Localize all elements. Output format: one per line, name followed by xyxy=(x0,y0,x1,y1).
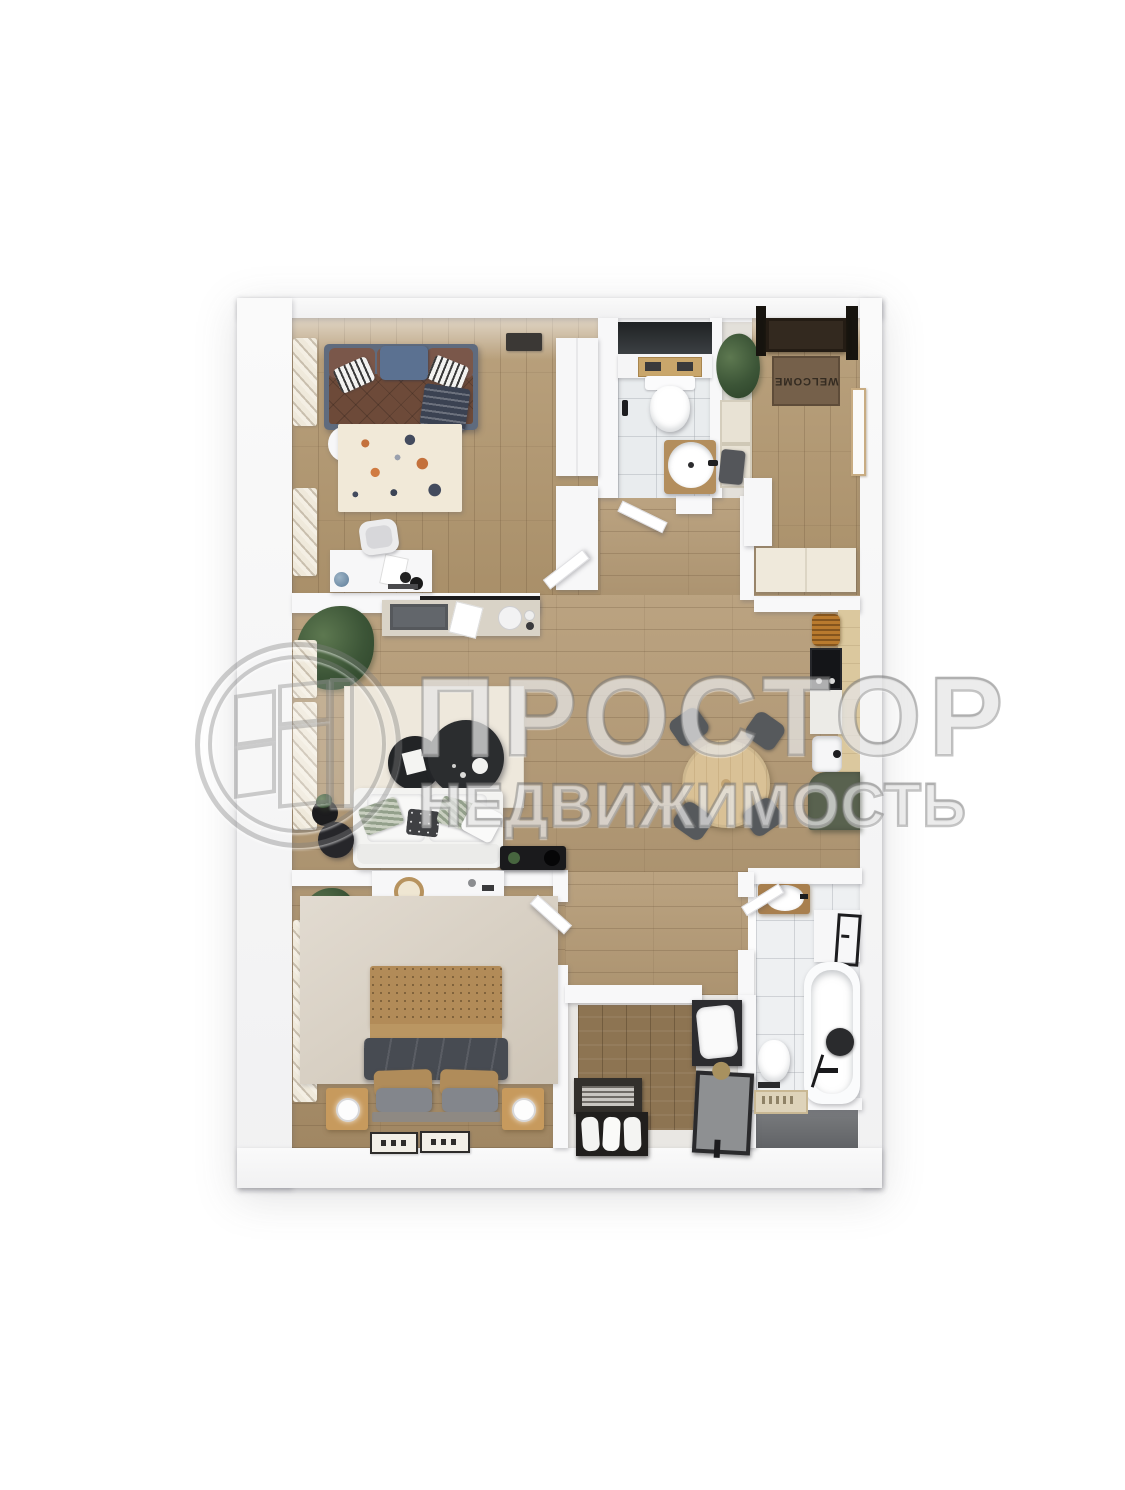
basin-faucet xyxy=(708,460,718,466)
towel-box xyxy=(576,1112,648,1156)
kitchen-counter-mid xyxy=(810,690,842,734)
bread-basket xyxy=(812,614,840,646)
gray-pillow xyxy=(442,1088,498,1112)
rolled-towel xyxy=(602,1117,621,1152)
vanity-faucet xyxy=(800,894,808,899)
cooktop xyxy=(810,648,842,690)
bed-base xyxy=(372,1112,500,1122)
wall-bottom xyxy=(237,1148,882,1188)
kitchen-sink xyxy=(812,736,842,772)
laptop xyxy=(390,604,448,630)
nightstand-left xyxy=(326,1088,368,1130)
cup xyxy=(524,610,535,621)
wall-bedroom1-right xyxy=(598,318,618,498)
kettle xyxy=(498,606,522,630)
towel-hook xyxy=(622,400,628,416)
table-lamp xyxy=(336,1098,360,1122)
welcome-mat-text: WELCOME xyxy=(774,375,838,387)
table-decor xyxy=(460,772,466,778)
toilet-bowl xyxy=(758,1040,790,1082)
rolled-towel xyxy=(623,1117,641,1152)
logo-pane xyxy=(234,741,276,799)
blue-pillow xyxy=(380,346,428,380)
desk-chair xyxy=(358,518,400,557)
wall-storage-top xyxy=(565,985,702,1003)
basin-drain xyxy=(688,462,694,468)
storage-bench xyxy=(756,548,856,592)
logo-pane xyxy=(278,679,330,726)
magazine-rack xyxy=(574,1078,642,1114)
globe xyxy=(334,572,349,587)
console-speaker xyxy=(544,850,560,866)
media-console xyxy=(500,846,566,870)
woven-ball xyxy=(712,1061,731,1080)
round-basin xyxy=(668,442,714,488)
wall-bathroom-top xyxy=(748,868,862,884)
floorplan-render: WELCOME xyxy=(0,0,1125,1490)
console-plant xyxy=(508,852,520,864)
desk-tray xyxy=(388,584,418,589)
shelf-unit xyxy=(692,1000,742,1066)
wall-corridor-bathroom-b xyxy=(738,950,754,998)
patterned-rug xyxy=(338,424,462,512)
logo-pane xyxy=(234,689,276,747)
entrance-door-jamb xyxy=(846,306,858,360)
watermark-logo-glyph xyxy=(228,678,358,808)
curtain xyxy=(293,488,317,576)
table-lamp xyxy=(512,1098,536,1122)
tray-item xyxy=(645,362,661,371)
stored-pillow xyxy=(695,1004,738,1060)
rail-bar xyxy=(841,935,849,939)
entry-white-cabinet xyxy=(744,478,772,546)
wall-corridor-bathroom-a xyxy=(738,872,754,897)
wc-tray xyxy=(638,357,702,377)
table-knot xyxy=(721,779,731,789)
woven-headboard xyxy=(370,966,502,1028)
paper-sheet xyxy=(449,601,484,639)
wall-wc-bottom xyxy=(676,496,712,514)
laundry-basket xyxy=(692,1071,754,1156)
cooktop-knob xyxy=(829,678,835,684)
rolled-towel xyxy=(581,1116,600,1151)
toilet-flush xyxy=(758,1082,780,1088)
bath-mat xyxy=(754,1090,808,1114)
desk xyxy=(330,550,432,592)
wall-top xyxy=(237,298,882,318)
wardrobe xyxy=(556,338,598,476)
nightstand-right xyxy=(502,1088,544,1130)
sink-faucet xyxy=(833,750,841,758)
toilet-bowl xyxy=(650,386,690,432)
coffee-table-large xyxy=(428,720,504,796)
gray-pillow xyxy=(376,1088,432,1112)
bath-fixture xyxy=(818,1068,838,1073)
towel-rail xyxy=(834,913,862,967)
welcome-mat: WELCOME xyxy=(772,356,840,406)
console-table xyxy=(382,600,540,636)
mat-pattern xyxy=(762,1096,796,1104)
green-base-cabinet xyxy=(808,772,860,830)
basket-strap xyxy=(714,1140,721,1158)
table-decor xyxy=(452,764,456,768)
entrance-door-jamb xyxy=(756,306,766,356)
logo-pane xyxy=(278,721,330,808)
entrance-door xyxy=(766,318,846,352)
stool xyxy=(718,449,745,485)
tray-item xyxy=(677,362,693,371)
runner-rug xyxy=(420,1131,470,1153)
runner-rug xyxy=(370,1132,418,1154)
patterned-pillow xyxy=(406,808,441,837)
cup xyxy=(526,622,534,630)
chair-seat xyxy=(365,524,394,549)
bathtub xyxy=(804,962,860,1104)
magazines xyxy=(582,1086,634,1106)
sofa-backrest xyxy=(357,844,499,864)
dresser-item xyxy=(468,879,476,887)
logo-bar xyxy=(330,678,354,808)
dresser-item xyxy=(482,885,494,891)
shower-head xyxy=(826,1028,854,1056)
curtain xyxy=(293,338,317,426)
cooktop-knob xyxy=(816,678,822,684)
double-bed xyxy=(364,966,508,1120)
wall-art xyxy=(506,333,542,351)
table-card xyxy=(402,749,427,775)
sofa-bed xyxy=(324,344,478,430)
dark-wall-panel xyxy=(618,322,712,354)
corridor-floor xyxy=(565,872,748,995)
table-decor xyxy=(472,758,488,774)
wall-frame xyxy=(851,388,866,476)
